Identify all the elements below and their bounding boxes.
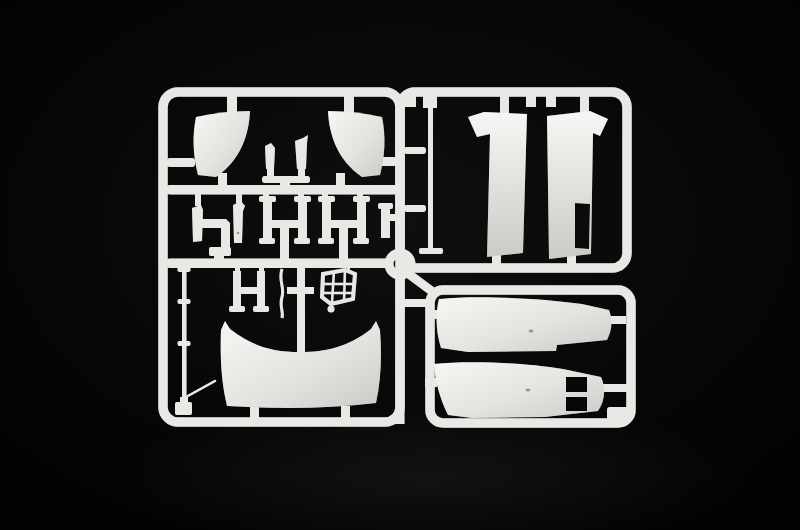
topbar-stub-a xyxy=(526,96,536,107)
runner-stub-to-br-frame xyxy=(402,299,428,307)
runner-horizontal-2 xyxy=(166,259,392,269)
topbar-stub-b xyxy=(546,96,556,107)
leftframe-stub xyxy=(167,158,195,167)
runner-vertical-lower xyxy=(396,276,405,424)
br-junction-block xyxy=(607,407,629,422)
pillar-trim-a xyxy=(265,143,275,169)
wiper-stub-b xyxy=(404,205,426,212)
topbar-block xyxy=(401,96,416,107)
product-photo: sprue outer frame and runner bars circul… xyxy=(0,0,800,530)
wiper-stub-a xyxy=(404,147,426,154)
